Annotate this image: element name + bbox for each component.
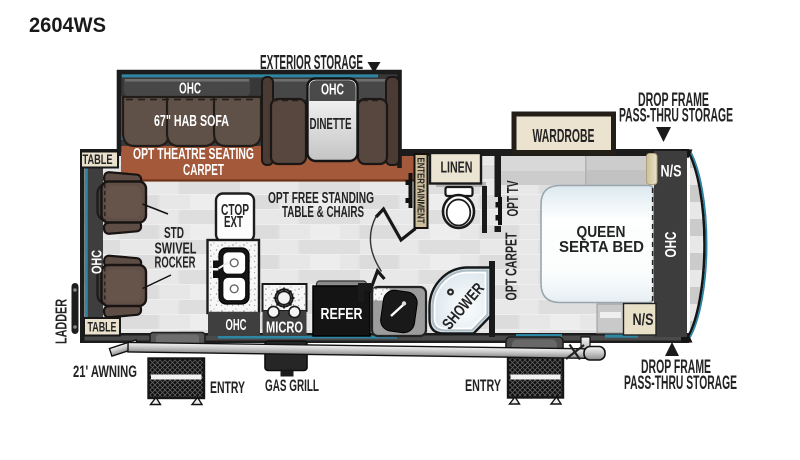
- svg-text:EXT: EXT: [224, 214, 243, 231]
- svg-text:PASS-THRU STORAGE: PASS-THRU STORAGE: [619, 105, 733, 127]
- svg-text:DINETTE: DINETTE: [310, 116, 352, 133]
- svg-text:ENTRY: ENTRY: [210, 378, 245, 397]
- svg-text:OPT THEATRE SEATING: OPT THEATRE SEATING: [133, 146, 254, 163]
- svg-text:EXTERIOR STORAGE: EXTERIOR STORAGE: [260, 52, 363, 74]
- svg-text:OHC: OHC: [663, 232, 680, 258]
- svg-text:STD: STD: [164, 225, 184, 242]
- svg-text:N/S: N/S: [633, 310, 654, 329]
- svg-text:CARPET: CARPET: [183, 162, 224, 179]
- svg-text:MICRO: MICRO: [266, 320, 303, 337]
- svg-text:PASS-THRU STORAGE: PASS-THRU STORAGE: [624, 372, 737, 394]
- svg-text:SERTA BED: SERTA BED: [559, 239, 644, 256]
- svg-text:WARDROBE: WARDROBE: [533, 125, 595, 146]
- svg-text:OHC: OHC: [179, 81, 201, 98]
- svg-text:REFER: REFER: [321, 306, 363, 323]
- svg-text:TABLE: TABLE: [88, 320, 117, 335]
- svg-text:ENTERTAINMENT: ENTERTAINMENT: [415, 158, 426, 224]
- svg-text:TABLE & CHAIRS: TABLE & CHAIRS: [282, 204, 364, 221]
- svg-text:OHC: OHC: [321, 82, 344, 99]
- svg-text:ROCKER: ROCKER: [155, 255, 196, 272]
- svg-text:LINEN: LINEN: [441, 160, 473, 177]
- svg-text:GAS GRILL: GAS GRILL: [265, 376, 319, 395]
- svg-text:21' AWNING: 21' AWNING: [73, 362, 137, 381]
- svg-text:LADDER: LADDER: [54, 299, 71, 344]
- svg-text:OPT CARPET: OPT CARPET: [504, 232, 521, 300]
- svg-text:OHC: OHC: [89, 250, 106, 274]
- svg-text:OHC: OHC: [226, 317, 247, 334]
- svg-text:2604WS: 2604WS: [29, 13, 106, 37]
- svg-text:ENTRY: ENTRY: [465, 376, 501, 395]
- svg-text:OPT TV: OPT TV: [505, 180, 522, 216]
- svg-text:67" HAB SOFA: 67" HAB SOFA: [154, 113, 229, 130]
- svg-text:N/S: N/S: [661, 162, 682, 181]
- svg-text:TABLE: TABLE: [83, 152, 113, 167]
